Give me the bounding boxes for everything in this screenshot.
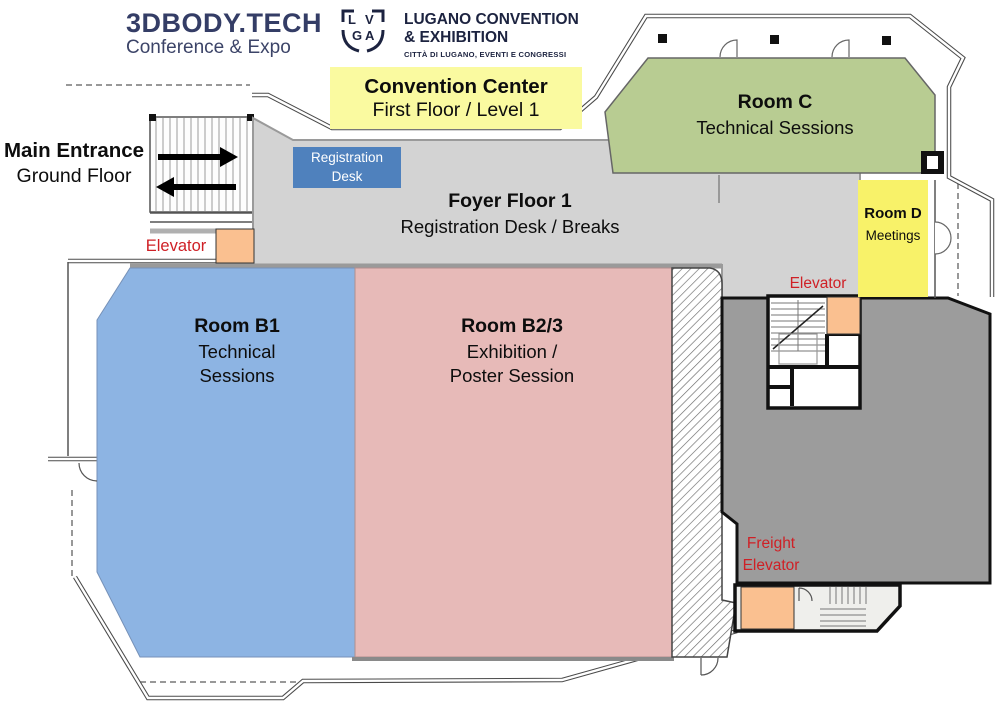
venue-tagline: CITTÀ DI LUGANO, EVENTI E CONGRESSI [404,50,579,59]
door-arc-icon [701,658,718,675]
room-d-description: Meetings [857,226,929,246]
entrance-title: Main Entrance [0,137,150,164]
room-b1-desc2: Sessions [148,364,326,388]
room-c-label: Room C Technical Sessions [650,90,900,140]
brand-name: 3DBODY.TECH [126,9,322,37]
venue-name-line1: LUGANO CONVENTION [404,11,579,29]
venue-logo: LUGANO CONVENTION & EXHIBITION CITTÀ DI … [404,11,579,59]
brand-tagline: Conference & Expo [126,37,322,59]
banner-subtitle: First Floor / Level 1 [373,99,540,122]
elevator-right-box [827,297,860,334]
banner-title: Convention Center [364,75,547,99]
freight-elevator-room [735,585,900,631]
pillar [882,36,891,45]
room-d-label: Room D Meetings [857,203,929,246]
room-c-description: Technical Sessions [650,116,900,140]
lvga-logo-icon: L V G A [338,6,388,54]
mark-letter: L [348,12,356,27]
foyer-label: Foyer Floor 1 Registration Desk / Breaks [330,189,690,239]
shaft-box-inner [927,156,938,169]
foyer-description: Registration Desk / Breaks [330,215,690,239]
brand-logo: 3DBODY.TECH Conference & Expo [126,9,322,59]
door-arc-icon [79,463,97,481]
main-entrance-stairs [149,114,254,231]
right-stairwell [768,296,860,408]
registration-line2: Desk [332,168,363,186]
floor-banner: Convention Center First Floor / Level 1 [330,67,582,129]
elevator-left-box [216,229,254,263]
floor-plan-page: 3DBODY.TECH Conference & Expo L V G A LU… [0,0,1000,715]
room-b1-name: Room B1 [148,314,326,340]
mark-letter: V [365,12,374,27]
main-entrance-label: Main Entrance Ground Floor [0,137,150,190]
elevator-right-label: Elevator [777,274,859,294]
room-b1-desc1: Technical [148,340,326,364]
freight-elevator-label: Freight Elevator [729,533,813,576]
stair-post [149,114,156,121]
room-b23-name: Room B2/3 [398,314,626,340]
foyer-name: Foyer Floor 1 [330,189,690,215]
mark-letter: G [352,28,362,43]
freight-line2: Elevator [729,555,813,577]
door-arc-icon [720,40,737,57]
door-arc-icon [935,222,951,254]
room-b1-label: Room B1 Technical Sessions [148,314,326,389]
room-b23-desc1: Exhibition / [398,340,626,364]
mark-letter: A [365,28,375,43]
room-b23-desc2: Poster Session [398,364,626,388]
venue-name-line2: & EXHIBITION [404,29,579,47]
elevator-left-label: Elevator [136,236,216,258]
pillar [658,34,667,43]
room-b23-label: Room B2/3 Exhibition / Poster Session [398,314,626,389]
registration-line1: Registration [311,149,383,167]
pillar [770,35,779,44]
room-d-name: Room D [857,203,929,226]
freight-elevator-box [741,587,794,629]
entrance-subtitle: Ground Floor [0,164,150,190]
registration-desk: Registration Desk [293,147,401,188]
freight-line1: Freight [729,533,813,555]
door-arc-icon [832,40,849,57]
room-c-name: Room C [650,90,900,116]
